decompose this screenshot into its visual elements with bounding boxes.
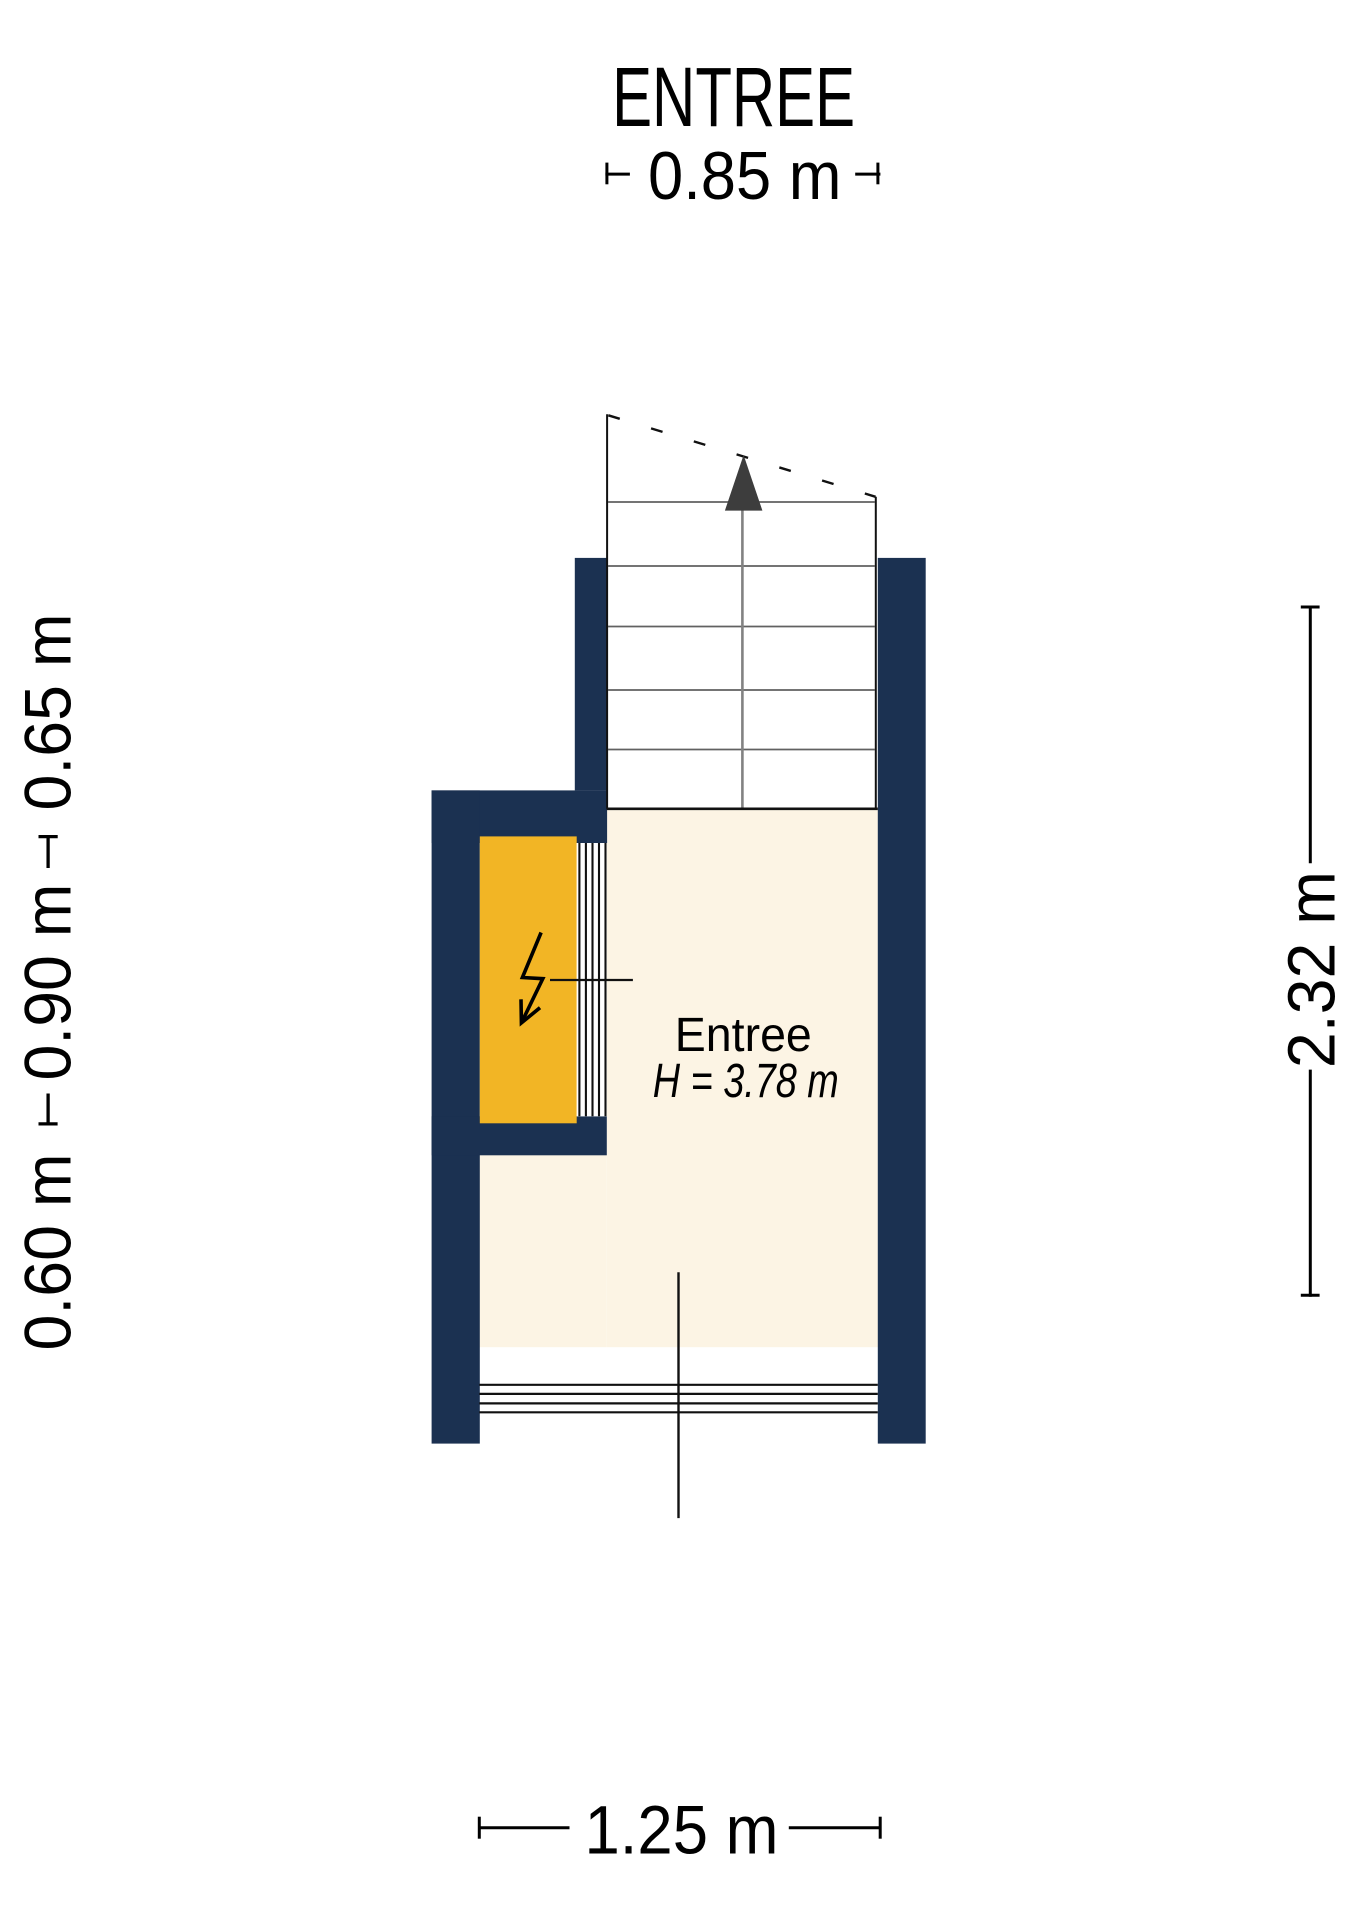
svg-text:1.25 m: 1.25 m	[585, 1792, 779, 1869]
svg-text:H = 3.78 m: H = 3.78 m	[653, 1054, 839, 1108]
svg-text:2.32 m: 2.32 m	[1276, 871, 1350, 1068]
svg-text:ENTREE: ENTREE	[612, 50, 855, 144]
svg-text:0.60 m: 0.60 m	[12, 1154, 85, 1351]
svg-text:0.90 m: 0.90 m	[12, 884, 85, 1081]
svg-text:0.85 m: 0.85 m	[648, 139, 842, 214]
svg-text:0.65 m: 0.65 m	[12, 614, 85, 811]
